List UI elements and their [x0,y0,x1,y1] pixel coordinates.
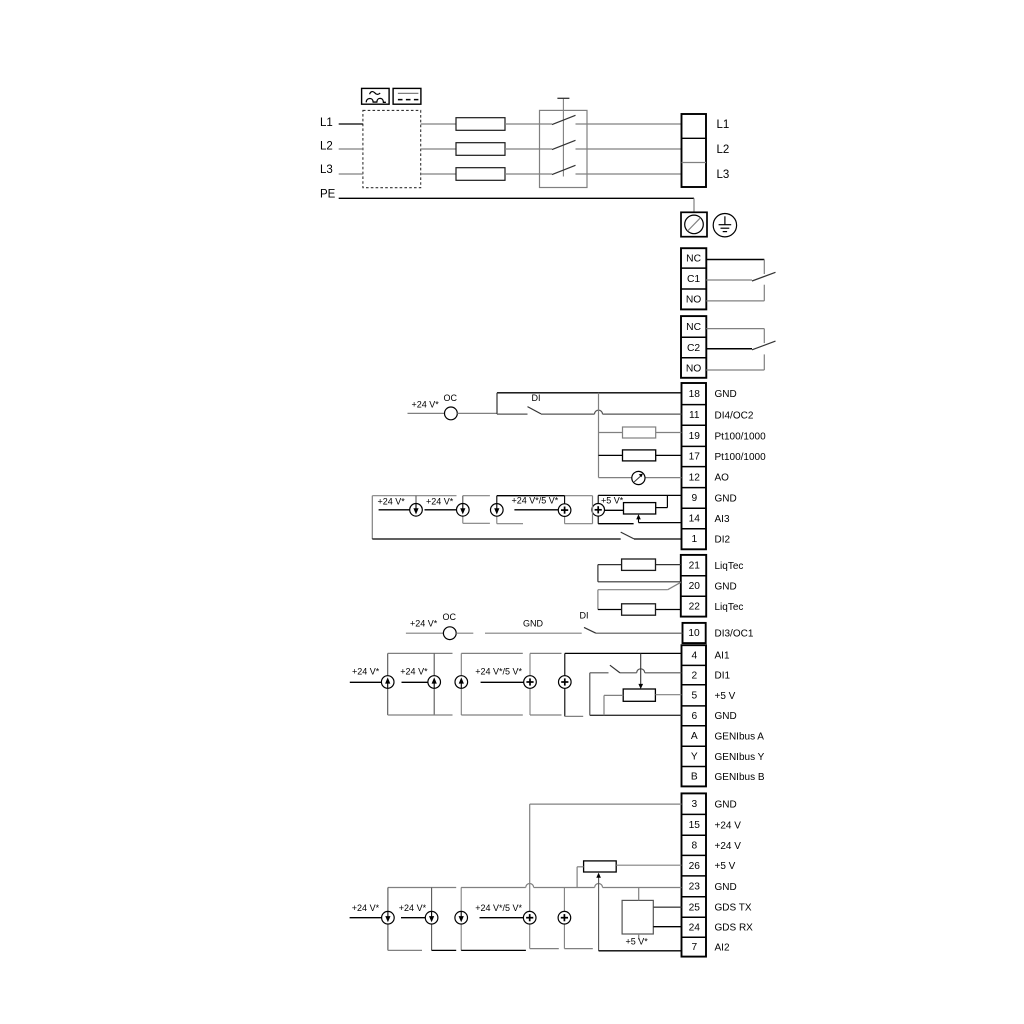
svg-text:+5 V*: +5 V* [601,495,624,505]
svg-text:L1: L1 [717,119,730,131]
svg-text:+24 V*/5 V*: +24 V*/5 V* [475,666,522,676]
svg-text:NO: NO [686,294,701,305]
svg-text:DI: DI [532,393,541,403]
svg-text:+24 V: +24 V [715,820,742,831]
svg-text:L3: L3 [320,164,333,176]
svg-text:17: 17 [689,452,701,463]
svg-text:GDS TX: GDS TX [715,902,752,913]
svg-text:11: 11 [689,410,700,421]
svg-text:15: 15 [689,820,701,831]
svg-text:+24 V: +24 V [715,841,742,852]
svg-text:7: 7 [691,942,697,953]
svg-text:+24 V*: +24 V* [399,903,427,913]
svg-text:AI3: AI3 [715,514,730,525]
svg-text:+24 V*: +24 V* [410,619,438,629]
svg-text:C2: C2 [687,343,700,354]
svg-text:+24 V*: +24 V* [352,666,380,676]
svg-text:19: 19 [689,431,701,442]
svg-text:5: 5 [691,691,697,702]
svg-text:L1: L1 [320,117,333,129]
svg-text:+24 V*/5 V*: +24 V*/5 V* [512,496,559,506]
svg-text:Pt100/1000: Pt100/1000 [715,452,767,463]
svg-text:+5 V*: +5 V* [626,937,649,947]
svg-text:B: B [691,772,698,783]
svg-text:25: 25 [689,902,701,913]
svg-text:GND: GND [715,389,737,400]
svg-text:+24 V*: +24 V* [400,666,428,676]
svg-text:2: 2 [691,670,697,681]
svg-text:GENIbus Y: GENIbus Y [715,752,765,763]
svg-text:Pt100/1000: Pt100/1000 [715,431,767,442]
svg-text:GDS RX: GDS RX [715,923,754,934]
svg-text:+24 V*: +24 V* [378,497,406,507]
svg-text:21: 21 [689,561,701,572]
svg-text:NC: NC [686,253,701,264]
svg-text:OC: OC [444,393,458,403]
svg-text:18: 18 [689,389,701,400]
svg-text:NO: NO [686,363,701,374]
svg-text:GND: GND [715,493,737,504]
svg-text:C1: C1 [687,274,700,285]
svg-text:6: 6 [691,711,697,722]
svg-text:DI2: DI2 [715,534,731,545]
svg-text:14: 14 [689,514,701,525]
svg-text:+5 V: +5 V [715,861,736,872]
svg-text:GENIbus A: GENIbus A [715,731,765,742]
svg-text:12: 12 [689,472,701,483]
svg-text:LiqTec: LiqTec [715,602,744,613]
svg-text:24: 24 [689,922,701,933]
svg-text:10: 10 [688,628,700,639]
svg-text:Y: Y [691,752,698,763]
svg-text:A: A [691,731,698,742]
svg-text:AI1: AI1 [715,651,730,662]
svg-text:+5 V: +5 V [715,691,736,702]
svg-text:GND: GND [523,619,544,629]
svg-text:22: 22 [689,602,701,613]
svg-text:+24 V*: +24 V* [426,497,454,507]
svg-text:23: 23 [689,882,701,893]
svg-text:GND: GND [715,799,737,810]
svg-text:L2: L2 [320,141,333,153]
svg-text:+24 V*/5 V*: +24 V*/5 V* [475,903,522,913]
svg-text:GENIbus B: GENIbus B [715,772,765,783]
svg-text:4: 4 [691,651,697,662]
svg-text:DI4/OC2: DI4/OC2 [715,410,754,421]
svg-text:GND: GND [715,581,737,592]
svg-text:GND: GND [715,882,737,893]
svg-text:GND: GND [715,711,737,722]
svg-text:+24 V*: +24 V* [412,400,440,410]
svg-text:9: 9 [691,493,697,504]
svg-text:AI2: AI2 [715,942,730,953]
svg-text:NC: NC [686,322,701,333]
svg-text:DI: DI [580,611,589,621]
svg-text:PE: PE [320,188,336,200]
svg-text:L2: L2 [717,144,730,156]
svg-text:20: 20 [689,581,701,592]
svg-text:LiqTec: LiqTec [715,561,744,572]
svg-text:AO: AO [715,473,730,484]
svg-text:1: 1 [691,534,697,545]
svg-text:L3: L3 [717,169,730,181]
svg-text:OC: OC [443,612,457,622]
svg-text:26: 26 [689,861,701,872]
svg-text:8: 8 [691,841,697,852]
svg-text:+24 V*: +24 V* [352,903,380,913]
svg-text:3: 3 [691,799,697,810]
svg-text:DI1: DI1 [715,671,731,682]
svg-text:DI3/OC1: DI3/OC1 [715,628,754,639]
